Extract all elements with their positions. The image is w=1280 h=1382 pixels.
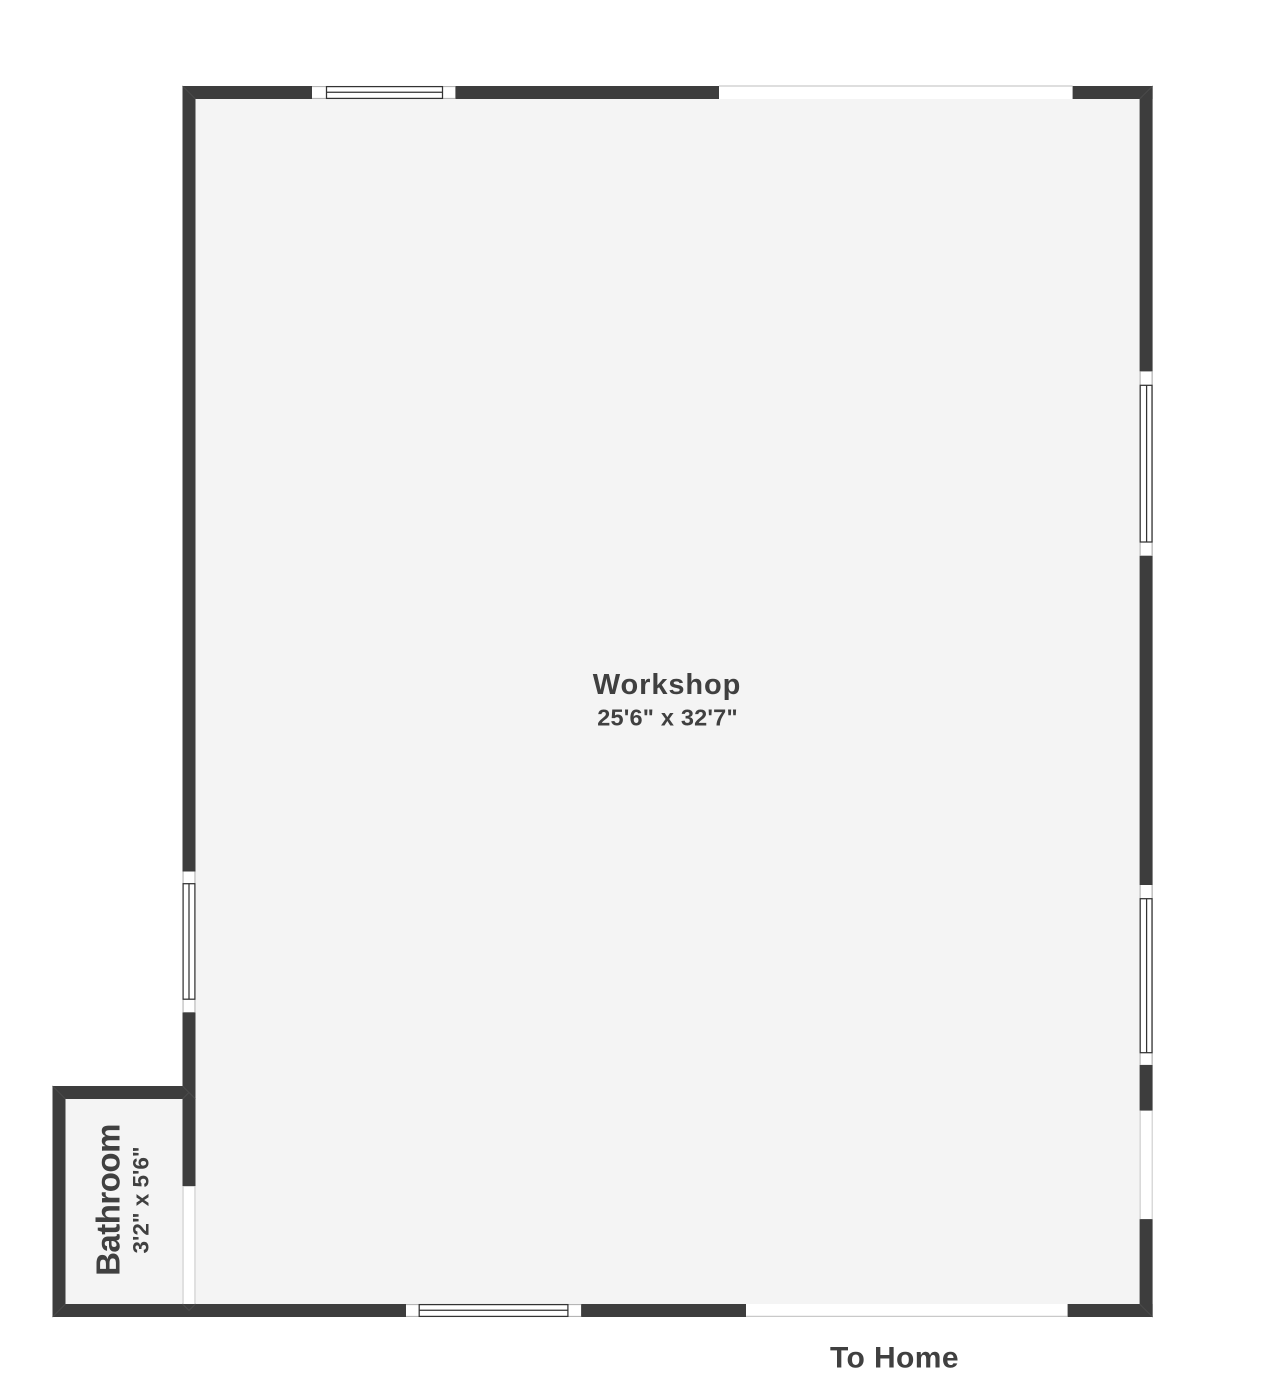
svg-text:Workshop: Workshop bbox=[593, 669, 741, 701]
svg-text:To Home: To Home bbox=[830, 1342, 959, 1375]
svg-text:25'6" x 32'7": 25'6" x 32'7" bbox=[597, 705, 738, 731]
svg-text:Bathroom: Bathroom bbox=[90, 1124, 127, 1276]
svg-text:3'2" x 5'6": 3'2" x 5'6" bbox=[129, 1146, 154, 1253]
